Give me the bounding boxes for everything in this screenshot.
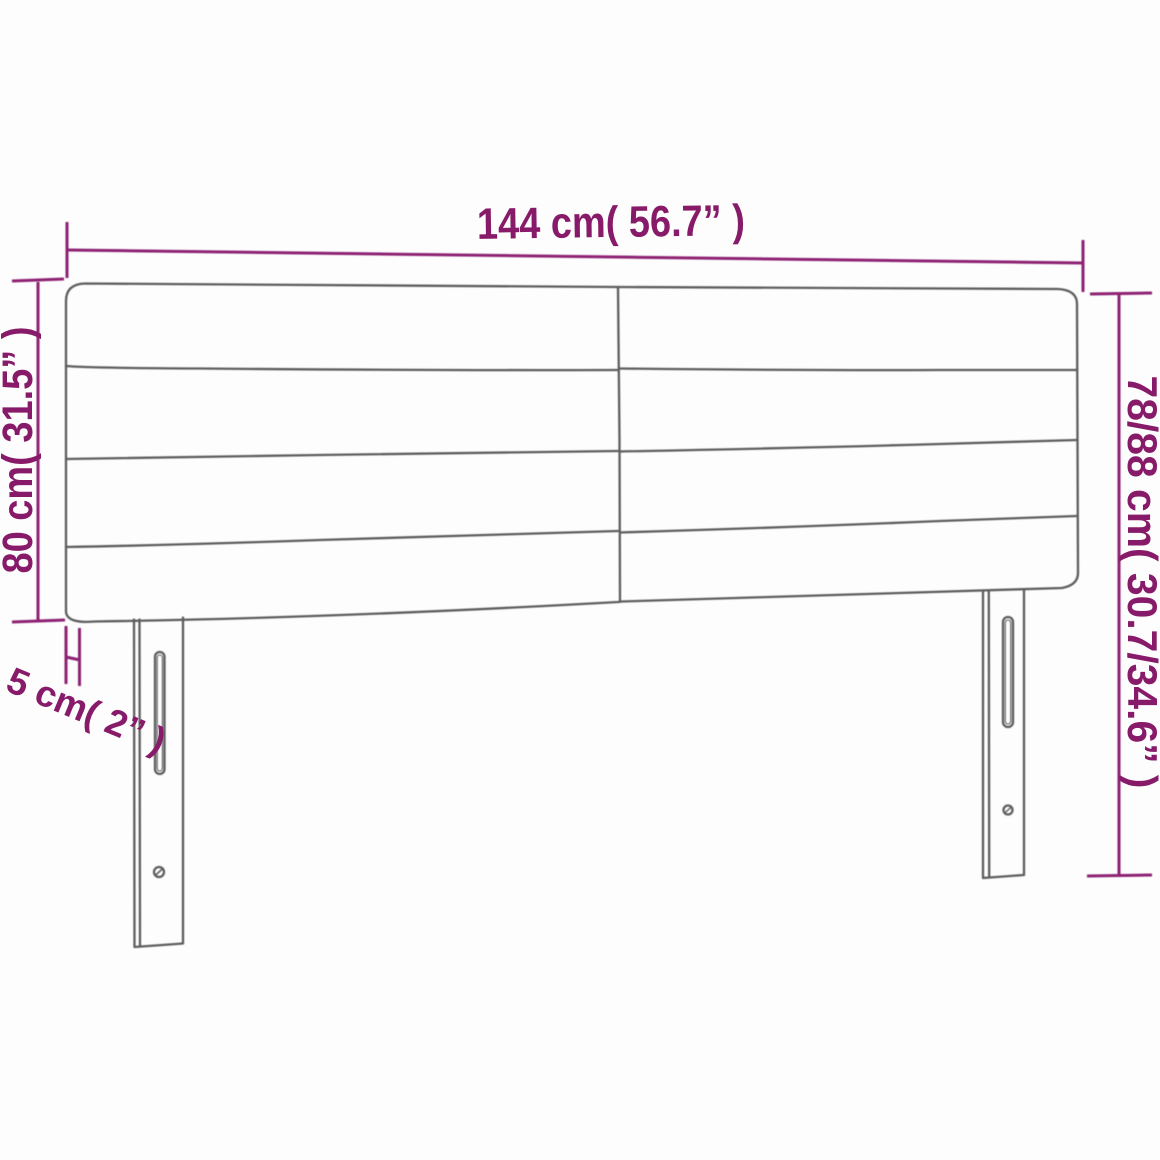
svg-text:144 cm( 56.7” ): 144 cm( 56.7” ) xyxy=(477,196,746,249)
svg-text:80 cm( 31.5” ): 80 cm( 31.5” ) xyxy=(0,327,42,574)
svg-text:78/88 cm( 30.7/34.6” ): 78/88 cm( 30.7/34.6” ) xyxy=(1119,376,1160,789)
